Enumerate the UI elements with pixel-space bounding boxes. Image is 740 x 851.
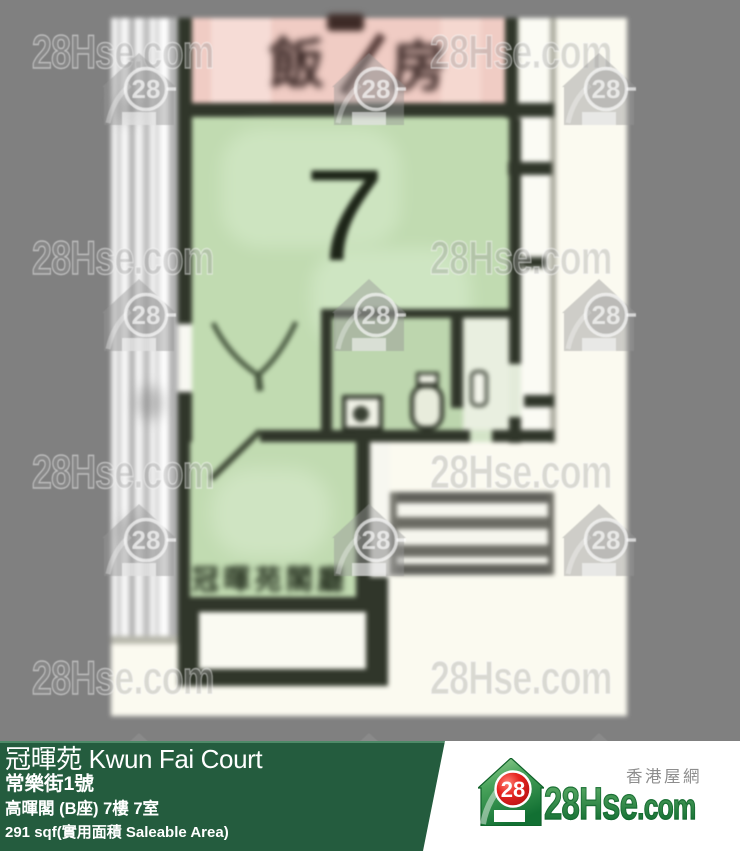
svg-text:28: 28 xyxy=(501,777,525,802)
